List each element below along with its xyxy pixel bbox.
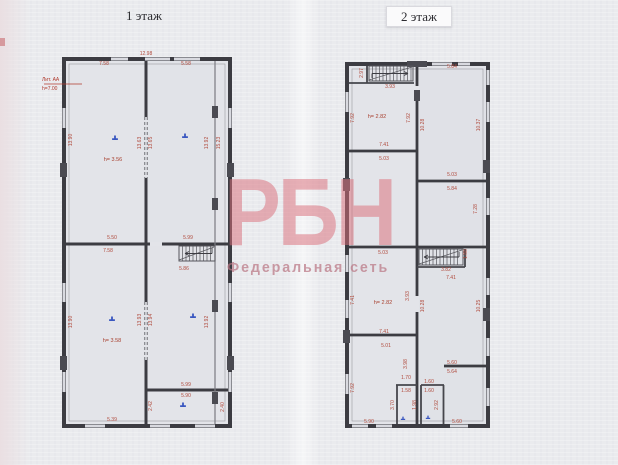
dim-label: 5.39 (107, 417, 117, 423)
dim-label: 5.60 (447, 360, 457, 366)
dim-label: 5.99 (183, 235, 193, 241)
dim-label: 7.41 (379, 142, 389, 148)
dim-label: 10.37 (476, 119, 482, 132)
dim-label: 5.84 (447, 186, 457, 192)
dim-label: 13.63 (137, 137, 143, 150)
dim-label: 5.50 (107, 235, 117, 241)
dim-label: 10.28 (420, 119, 426, 132)
dim-label: 7.58 (99, 61, 109, 67)
building-height-label: h=7.00 (42, 86, 58, 92)
dim-label: 1.98 (412, 400, 418, 410)
dim-label: 5.90 (364, 419, 374, 425)
dim-label: 13.90 (68, 134, 74, 147)
dim-label: 5.86 (179, 266, 189, 272)
room-shading (419, 68, 486, 245)
dim-label: 1.60 (424, 388, 434, 394)
dim-label: 10.25 (476, 300, 482, 313)
ceiling-height-label: h= 2.82 (368, 114, 387, 120)
dim-label: 1.58 (401, 388, 411, 394)
dim-label: 7.41 (350, 295, 356, 305)
dim-label: 5.03 (447, 172, 457, 178)
dim-label: 2.42 (148, 401, 154, 411)
dim-label: 5.99 (181, 382, 191, 388)
dim-label: 3.70 (390, 400, 396, 410)
dim-label: 5.01 (381, 343, 391, 349)
dim-label: 3.98 (403, 359, 409, 369)
dim-label: 2.92 (434, 400, 440, 410)
dim-label: 1.60 (424, 379, 434, 385)
dim-label: 1.88 (463, 249, 469, 259)
ceiling-height-label: h= 3.56 (104, 157, 123, 163)
dim-label: 7.41 (379, 329, 389, 335)
dim-label: 15.23 (216, 137, 222, 150)
dim-label: 5.64 (447, 369, 457, 375)
scan-red-mark (0, 38, 5, 46)
dim-label: 13.65 (148, 137, 154, 150)
dim-label: 13.94 (148, 314, 154, 327)
watermark-logo: РБН (224, 165, 394, 261)
dim-label: 3.93 (385, 84, 395, 90)
dim-label: 13.92 (204, 316, 210, 329)
dim-label: 3.82 (441, 267, 451, 273)
watermark-subtitle: Федеральная сеть (227, 259, 389, 276)
lit-label: Лит. АА (42, 77, 60, 83)
dim-label: 7.92 (350, 113, 356, 123)
dim-label: 13.92 (204, 137, 210, 150)
dim-label: 5.60 (452, 419, 462, 425)
dim-label: 5.58 (181, 61, 191, 67)
dim-label: 1.70 (401, 375, 411, 381)
dim-label: 12.98 (140, 51, 153, 57)
dim-label: 13.93 (137, 314, 143, 327)
dim-label: 7.58 (103, 248, 113, 254)
dim-label: 7.41 (446, 275, 456, 281)
floor1-plan: Лит. АА h=7.00 12.98 7.58 5.58 13.90 13.… (42, 51, 234, 426)
dim-label: 2.40 (220, 402, 226, 412)
room-shading (148, 61, 213, 242)
dim-label: 10.28 (420, 300, 426, 313)
dim-label: 13.90 (68, 316, 74, 329)
dim-label: 5.84 (447, 64, 457, 70)
dim-label: 5.90 (181, 393, 191, 399)
dim-label: 7.92 (350, 383, 356, 393)
scanned-floorplan-page: 1 этаж 2 этаж (0, 0, 618, 465)
dim-label: 7.92 (406, 113, 412, 123)
dim-label: 2.97 (359, 68, 365, 78)
ceiling-height-label: h= 3.58 (103, 338, 122, 344)
ceiling-height-label: h= 2.82 (374, 300, 393, 306)
dim-label: 3.93 (405, 291, 411, 301)
dim-label: 7.28 (473, 204, 479, 214)
